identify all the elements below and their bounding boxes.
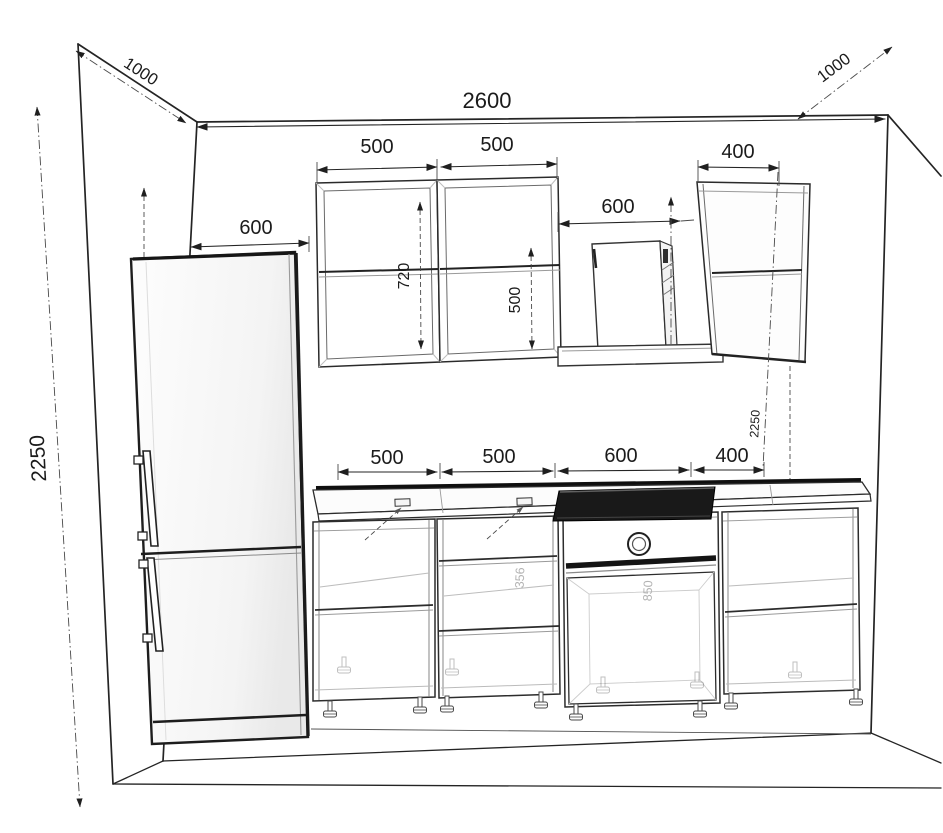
kitchen-elevation-svg: 356 850 [0,0,943,833]
dim-room-height-right-label: 2250 [747,409,762,438]
base-cab4-box [722,508,860,694]
wall-cab2-box [437,177,561,362]
fridge-body [131,252,308,744]
wall-cabinet-2 [437,177,561,362]
dim-wall-cab2-door-label: 500 [507,287,524,314]
counter-fitting-right [517,498,532,506]
dim-base-cab2-label: 500 [482,446,515,468]
dim-room-height-label: 2250 [26,434,51,482]
base-cabinet-1 [313,519,435,701]
counter-fitting-left [395,499,410,507]
dim-fridge-width-label: 600 [239,217,272,239]
dim-hood-label: 600 [601,196,634,218]
dim-room-width-label: 2600 [463,88,512,113]
dim-wall-cab1-label: 500 [360,136,393,158]
oven-knob [628,533,650,555]
wall-cab1-box [316,180,440,367]
dim-wall-cab3-label: 400 [721,141,754,163]
dim-wall-cab1-height-label: 720 [396,263,413,290]
fridge-handle-lower-mount-bottom [143,634,152,642]
dim-base-cab4-label: 400 [715,445,748,467]
hood-canopy [558,344,723,366]
kitchen-drawing-canvas: 356 850 [0,0,943,833]
fridge [131,252,308,744]
dim-base-cab1-label: 500 [370,447,403,469]
dim-base-cab3-label: 600 [604,445,637,467]
oven-inner-height-label: 850 [641,580,656,601]
wall-cabinet-1 [316,180,440,367]
base-cab2-inner-height-label: 356 [513,567,528,588]
fridge-handle-upper-mount-top [134,456,143,464]
hood-chimney [592,241,666,350]
fridge-handle-lower-mount-top [139,560,148,568]
dim-wall-cab2-label: 500 [480,134,513,156]
fridge-handle-upper-mount-bottom [138,532,147,540]
base-cabinet-4 [722,508,860,694]
hood-vent-slot [663,249,668,263]
